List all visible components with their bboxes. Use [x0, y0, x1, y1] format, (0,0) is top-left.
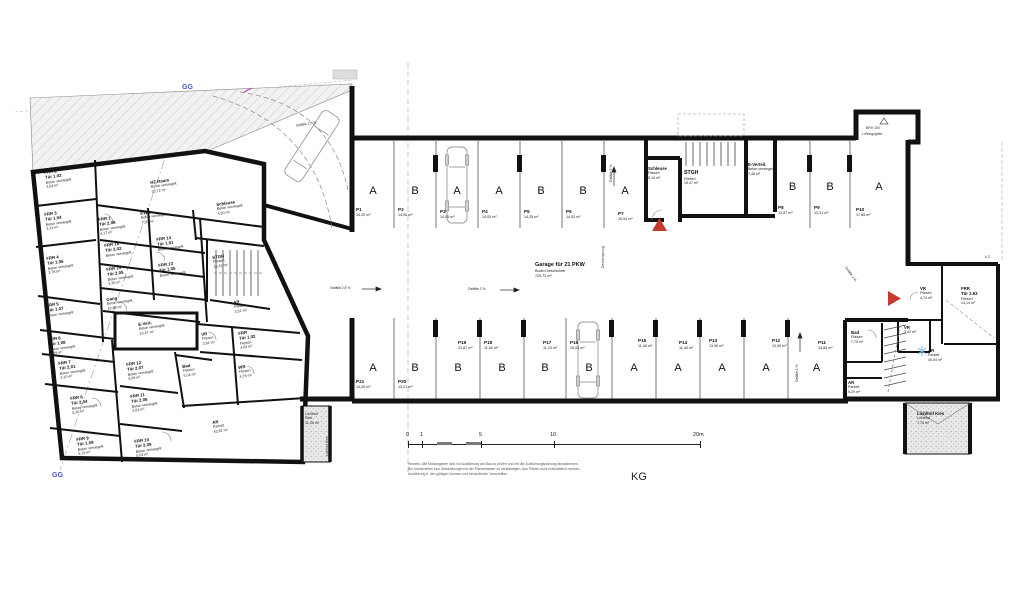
room-label-frr9: FRR 9Tür 1.09Beton versiegelt5,15 m²	[76, 433, 104, 456]
slope-label-left: Gefälle 2,5 %	[330, 286, 350, 290]
stall-letter-p5: B	[520, 185, 562, 197]
stall-id-p6: P614,03 m²	[566, 209, 581, 220]
stall-letter-p18: B	[480, 362, 524, 374]
room-label-garage-stgh: STGHFliesen15,47 m²	[684, 170, 698, 185]
vent-note-2: Lüftungsgitter	[862, 132, 883, 136]
stall-letter-p11: A	[788, 362, 845, 374]
stall-letter-p3: A	[436, 185, 478, 197]
stall-id-p19: P1913,87 m²	[458, 340, 473, 351]
stall-letter-p12: A	[744, 362, 788, 374]
floor-plan-page: GG GG KG Garage für 21 PKW Boden beschic…	[0, 0, 1024, 614]
stall-id-p9: P913,31 m²	[814, 205, 829, 216]
stall-letter-p15: A	[612, 362, 656, 374]
house-walls	[33, 151, 308, 462]
floor-plan-drawing	[0, 0, 1024, 614]
room-label-frr6: FRR 6Tür 1.08Beton versiegelt4,29 m²	[48, 333, 76, 356]
room-label-house-stgh: STGHFliesen15,41 m²	[212, 253, 228, 269]
scale-tick-10: 10	[550, 432, 556, 438]
room-label-wing-ar-klein: ARParkett5,29 m²	[848, 380, 860, 394]
room-label-everteil: E-Verteil.Beton versiegelt7,48 m²	[748, 162, 774, 176]
stall-id-p21: P2114,20 m²	[356, 379, 371, 390]
garage-walls	[352, 86, 918, 401]
garage-area: 729,72 m²	[535, 274, 585, 279]
room-label-frr4: FRR 4Tür 1.06Beton versiegelt3,78 m²	[46, 252, 74, 275]
room-label-vr2: VR3,42 m²	[904, 325, 916, 335]
wing-stairs	[884, 325, 906, 392]
slope-label-top-v: Gefälle 2 %	[609, 164, 613, 182]
room-label-frr15: FRR 15Tür 2.05Beton versiegelt4,35 m²	[106, 263, 134, 286]
vent-note-1: BRH 150	[866, 126, 880, 130]
stall-letter-p6: B	[562, 185, 604, 197]
vent-symbol	[880, 118, 888, 124]
room-label-frr1: FRR 1Tür 2.08Beton versiegelt4,17 m²	[98, 213, 126, 236]
stall-letter-p2: B	[394, 185, 436, 197]
entrance-markers	[652, 218, 901, 306]
stall-letter-p19: B	[436, 362, 480, 374]
scale-tick-5: 5	[479, 432, 482, 438]
room-label-house-lichthof: LichthofKies11,35 m²	[305, 412, 319, 425]
room-label-frr2: FRR 2Tür 1.03Beton versiegelt3,64 m²	[44, 166, 72, 189]
stall-id-p15: P1511,40 m²	[638, 338, 652, 349]
stall-letter-p8: B	[775, 181, 810, 193]
stall-id-p17: P1711,23 m²	[543, 340, 557, 351]
room-label-house-ar2: ARParkett42,81 m²	[212, 418, 228, 434]
room-label-house-vr: VRFliesen3,82 m²	[201, 330, 215, 346]
stall-letter-p17: B	[524, 362, 566, 374]
room-label-wing-lichthof: Lichthof KiesLichthof7,75 m²	[917, 411, 944, 425]
room-label-house-ar1: ARFliesen3,51 m²	[233, 298, 247, 314]
room-label-frr3: FRR 3Tür 1.04Beton versiegelt3,14 m²	[44, 208, 72, 231]
slope-label-mid: Gefälle 2 %	[468, 287, 486, 291]
stall-id-p8: P813,87 m²	[778, 205, 793, 216]
stall-id-p12: P1213,50 m²	[772, 338, 787, 349]
stall-letter-p4: A	[478, 185, 520, 197]
stall-letter-p10: A	[850, 181, 908, 193]
stall-id-p7: P715,04 m²	[618, 211, 633, 222]
wing-walls	[845, 264, 1000, 401]
stall-letter-p13: A	[700, 362, 744, 374]
scale-tick-20: 20m	[693, 432, 704, 438]
plan-note-line3: Ausführung lt. den gültigen Normen und b…	[408, 472, 580, 477]
scale-tick-0: 0	[406, 432, 409, 438]
room-label-frr12: FRR 12Tür 2.07Beton versiegelt5,06 m²	[126, 358, 154, 381]
room-label-wr: WRFliesen4,78 m²	[238, 363, 252, 379]
scale-bar: 0 1 5 10 20m	[408, 432, 708, 448]
stall-id-p10: P1017,85 m²	[856, 207, 871, 218]
room-label-frr10: FRR 10Tür 2.09Beton versiegelt5,03 m²	[134, 435, 162, 458]
stall-id-p5: P514,25 m²	[524, 209, 539, 220]
stall-letter-p16: B	[566, 362, 612, 374]
stall-letter-p1: A	[352, 185, 394, 197]
stall-id-p20: P2013,21 m²	[398, 379, 413, 390]
section-label-top: GG	[182, 84, 193, 91]
stall-id-p1: P114,20 m²	[356, 207, 371, 218]
room-label-wing-frr: FRRTür 2.63Fliesen13,14 m²	[961, 286, 977, 306]
room-label-garage-schleuse: SchleuseFliesen5,10 m²	[648, 166, 667, 180]
room-label-frr11: FRR 11Tür 2.06Beton versiegelt3,81 m²	[130, 390, 158, 413]
section-label-bottom: GG	[52, 472, 63, 479]
stall-letter-p21: A	[352, 362, 394, 374]
stall-id-p4: P414,05 m²	[482, 209, 497, 220]
stall-letter-p7: A	[604, 185, 646, 197]
stall-dividers	[394, 141, 850, 399]
room-label-frr102: FRRTür 1.02Fliesen4,62 m²	[238, 329, 257, 351]
stall-id-p18: P1811,52 m²	[484, 340, 498, 351]
house-lichthof-vertical-label: Lichthof Kies	[325, 437, 329, 456]
room-label-vr1: VRFliesen4,74 m²	[920, 286, 932, 300]
room-label-wing-ar: ARParkett40,04 m²	[928, 348, 942, 362]
garage-title: Garage für 21 PKW Boden beschichtet 729,…	[535, 262, 585, 279]
stall-id-p2: P214,06 m²	[398, 207, 413, 218]
stall-letter-p20: B	[394, 362, 436, 374]
stall-id-p11: P1114,84 m²	[818, 340, 833, 351]
stall-id-p14: P1411,40 m²	[679, 340, 693, 351]
stall-letter-p14: A	[656, 362, 700, 374]
stall-id-p16: P1615,03 m²	[570, 340, 585, 351]
room-label-wing-bad: BadFliesen7,75 m²	[851, 330, 863, 344]
cars	[283, 109, 600, 398]
plan-notes: Hinweis: Alle Maßangaben sind vor Ausfüh…	[408, 462, 580, 477]
scale-tick-1: 1	[420, 432, 423, 438]
level-label: KG	[631, 471, 647, 483]
room-label-frr8: FRR 8Tür 2.04Beton versiegelt5,15 m²	[70, 392, 98, 415]
room-label-house-bad: BadFliesen5,04 m²	[182, 362, 196, 378]
stall-id-p3: P314,05 m²	[440, 209, 455, 220]
room-label-frr7: FRR 7Tür 2.01Beton versiegelt4,10 m²	[58, 357, 86, 380]
stall-id-p13: P1313,90 m²	[709, 338, 724, 349]
garage-title-text: Garage für 21 PKW	[535, 262, 585, 268]
stall-letter-p9: B	[810, 181, 850, 193]
stair-count-note: 6 Z	[985, 255, 990, 259]
deck-note: Deckensprung	[601, 246, 605, 268]
